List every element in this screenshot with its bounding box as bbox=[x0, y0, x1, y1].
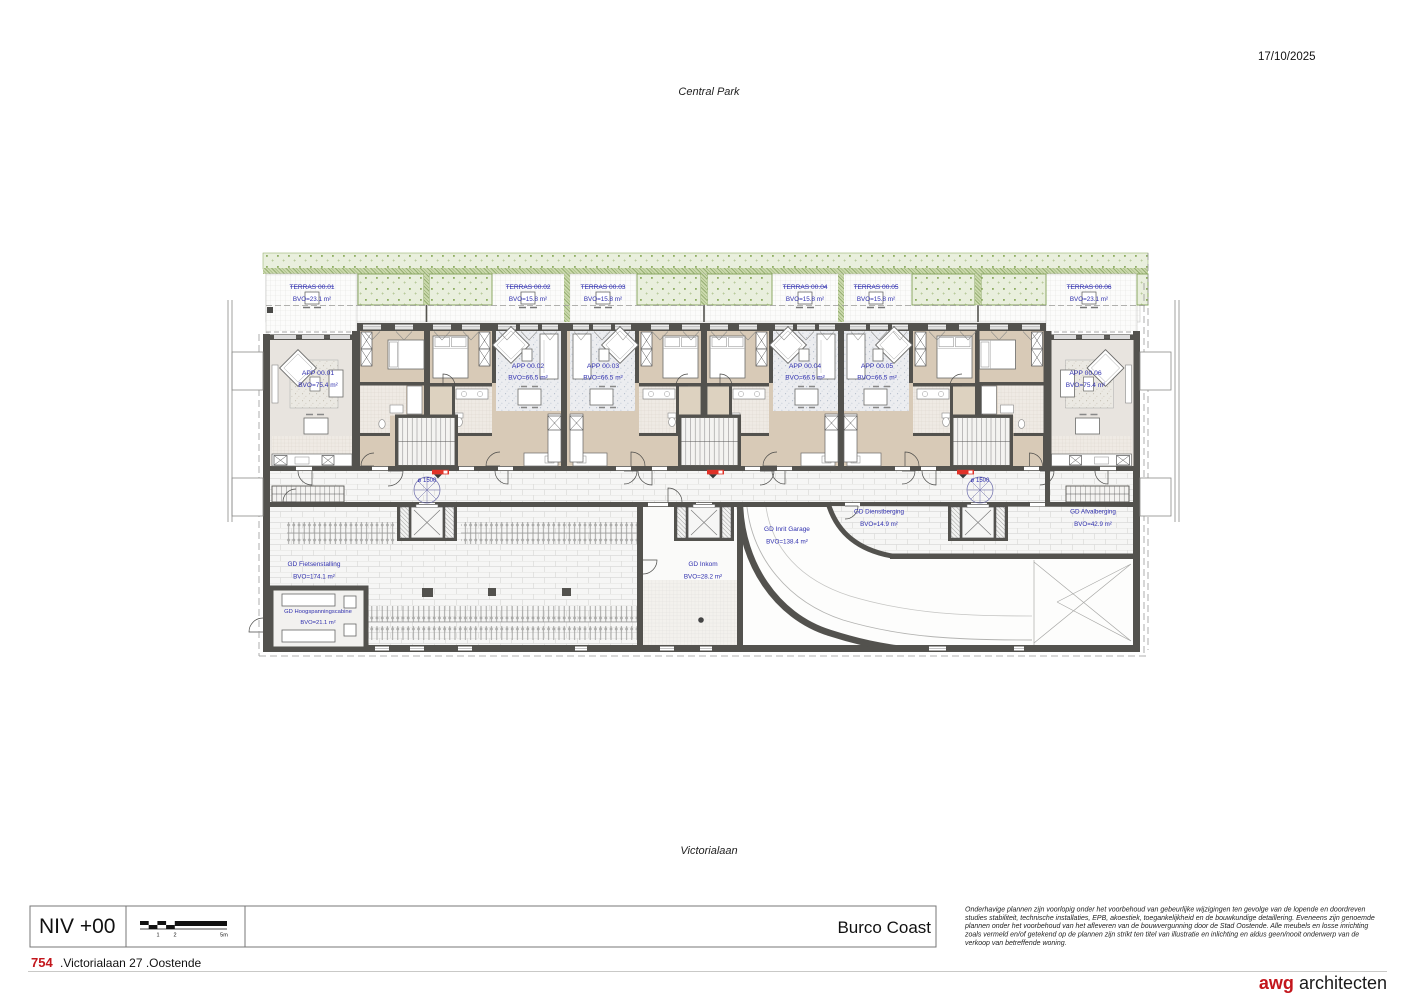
svg-text:GD Fietsenstalling: GD Fietsenstalling bbox=[287, 561, 340, 568]
svg-text:GD Hoogspanningscabine: GD Hoogspanningscabine bbox=[284, 609, 352, 615]
svg-text:BVO=75.4 m²: BVO=75.4 m² bbox=[298, 382, 338, 389]
svg-text:17/10/2025: 17/10/2025 bbox=[1258, 51, 1316, 63]
svg-text:2: 2 bbox=[173, 933, 176, 939]
svg-text:BVO=15.8 m²: BVO=15.8 m² bbox=[584, 296, 622, 303]
svg-text:APP 00.03: APP 00.03 bbox=[587, 363, 620, 370]
svg-text:BVO=14.9 m²: BVO=14.9 m² bbox=[860, 521, 898, 528]
svg-text:TERRAS 00.05: TERRAS 00.05 bbox=[853, 284, 898, 291]
svg-text:BVO=23.1 m²: BVO=23.1 m² bbox=[1070, 296, 1108, 303]
svg-text:BVO=75.4 m²: BVO=75.4 m² bbox=[1066, 382, 1106, 389]
svg-text:verkoop van betreffende woning: verkoop van betreffende woning. bbox=[965, 940, 1067, 947]
svg-text:BVO=66.5 m²: BVO=66.5 m² bbox=[583, 375, 623, 382]
svg-text:GD Inkom: GD Inkom bbox=[688, 561, 717, 568]
svg-text:TERRAS 00.03: TERRAS 00.03 bbox=[580, 284, 625, 291]
svg-text:ø 1500: ø 1500 bbox=[418, 478, 437, 484]
svg-text:BVO=66.5 m²: BVO=66.5 m² bbox=[508, 375, 548, 382]
svg-text:BVO=66.5 m²: BVO=66.5 m² bbox=[785, 375, 825, 382]
svg-text:BVO=28.2 m²: BVO=28.2 m² bbox=[684, 574, 722, 581]
svg-text:BVO=15.8 m²: BVO=15.8 m² bbox=[857, 296, 895, 303]
svg-text:APP 00.04: APP 00.04 bbox=[789, 363, 822, 370]
svg-text:APP 00.02: APP 00.02 bbox=[512, 363, 545, 370]
svg-text:5m: 5m bbox=[220, 933, 228, 939]
svg-text:Central Park: Central Park bbox=[678, 86, 740, 98]
svg-text:APP 00.06: APP 00.06 bbox=[1069, 370, 1102, 377]
svg-text:APP 00.05: APP 00.05 bbox=[861, 363, 894, 370]
svg-text:BVO=23.1 m²: BVO=23.1 m² bbox=[293, 296, 331, 303]
svg-text:Victorialaan: Victorialaan bbox=[680, 845, 737, 857]
svg-text:GD Afvalberging: GD Afvalberging bbox=[1070, 509, 1116, 516]
svg-text:BVO=21.1 m²: BVO=21.1 m² bbox=[300, 620, 335, 626]
svg-text:awg architecten: awg architecten bbox=[1259, 973, 1387, 993]
svg-text:754: 754 bbox=[31, 955, 53, 970]
svg-text:NIV +00: NIV +00 bbox=[39, 915, 115, 938]
svg-text:BVO=138.4 m²: BVO=138.4 m² bbox=[766, 539, 808, 546]
svg-text:.Victorialaan 27 .Oostende: .Victorialaan 27 .Oostende bbox=[60, 956, 202, 970]
svg-text:zoals vermeld en/of getekend o: zoals vermeld en/of getekend op de plann… bbox=[964, 932, 1359, 939]
svg-text:TERRAS 00.01: TERRAS 00.01 bbox=[289, 284, 334, 291]
svg-text:BVO=42.9 m²: BVO=42.9 m² bbox=[1074, 521, 1112, 528]
svg-text:studies stabiliteit, technisch: studies stabiliteit, technische installa… bbox=[965, 915, 1375, 922]
svg-text:Onderhavige plannen zijn voorl: Onderhavige plannen zijn voorlopig onder… bbox=[965, 907, 1366, 914]
svg-text:APP 00.01: APP 00.01 bbox=[302, 370, 335, 377]
svg-text:TERRAS 00.04: TERRAS 00.04 bbox=[782, 284, 827, 291]
svg-text:ø 1500: ø 1500 bbox=[971, 478, 990, 484]
svg-text:BVO=66.5 m²: BVO=66.5 m² bbox=[857, 375, 897, 382]
svg-text:GD Inrit Garage: GD Inrit Garage bbox=[764, 526, 810, 533]
svg-text:TERRAS 00.06: TERRAS 00.06 bbox=[1066, 284, 1111, 291]
svg-text:BVO=15.8 m²: BVO=15.8 m² bbox=[786, 296, 824, 303]
svg-text:1: 1 bbox=[156, 933, 159, 939]
svg-text:Burco Coast: Burco Coast bbox=[837, 918, 931, 937]
svg-text:plannen onder het voorbehoud v: plannen onder het voorbehoud van het afl… bbox=[964, 923, 1368, 930]
svg-text:BVO=174.1 m²: BVO=174.1 m² bbox=[293, 574, 335, 581]
svg-text:TERRAS 00.02: TERRAS 00.02 bbox=[505, 284, 550, 291]
svg-text:GD Dienstberging: GD Dienstberging bbox=[854, 509, 905, 516]
svg-text:BVO=15.8 m²: BVO=15.8 m² bbox=[509, 296, 547, 303]
